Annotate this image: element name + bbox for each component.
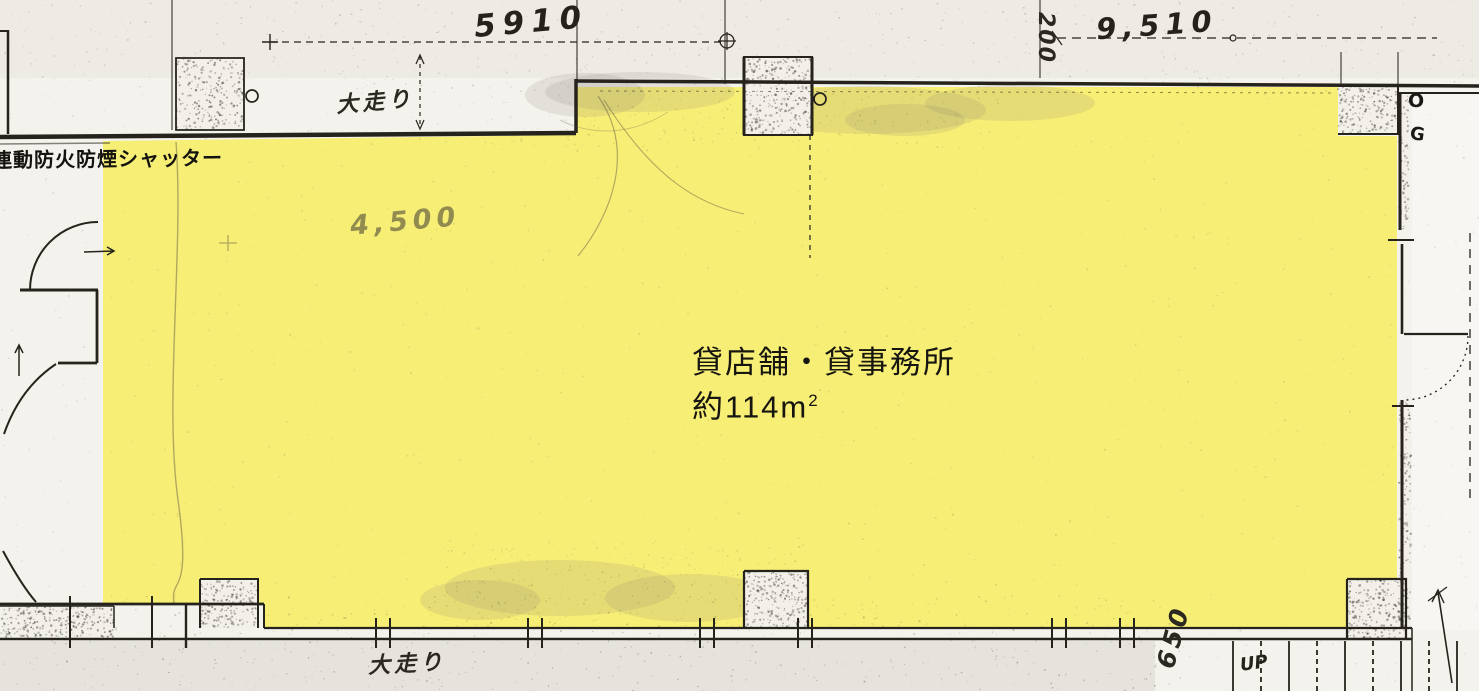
room-label: 貸店舗・貸事務所 約114m2 bbox=[692, 344, 956, 426]
corridor-label-top: 大走り bbox=[335, 81, 416, 120]
corridor-label-bottom: 大走り bbox=[367, 644, 447, 680]
room-label-sup: 2 bbox=[808, 391, 819, 410]
room-label-line1: 貸店舗・貸事務所 bbox=[692, 344, 956, 382]
floor-plan-scan: 連動防火防煙シャッター 大走り 5910 9,510 200 4,500 貸店舗… bbox=[0, 0, 1479, 691]
grid-mark-o: O bbox=[1408, 90, 1424, 112]
stairs-up-label: UP bbox=[1239, 651, 1269, 676]
dimension-top-vertical: 200 bbox=[1033, 12, 1058, 64]
shutter-note-label: 連動防火防煙シャッター bbox=[0, 142, 223, 173]
grid-mark-g: G bbox=[1409, 123, 1427, 146]
room-label-line2: 約114m2 bbox=[692, 382, 956, 426]
